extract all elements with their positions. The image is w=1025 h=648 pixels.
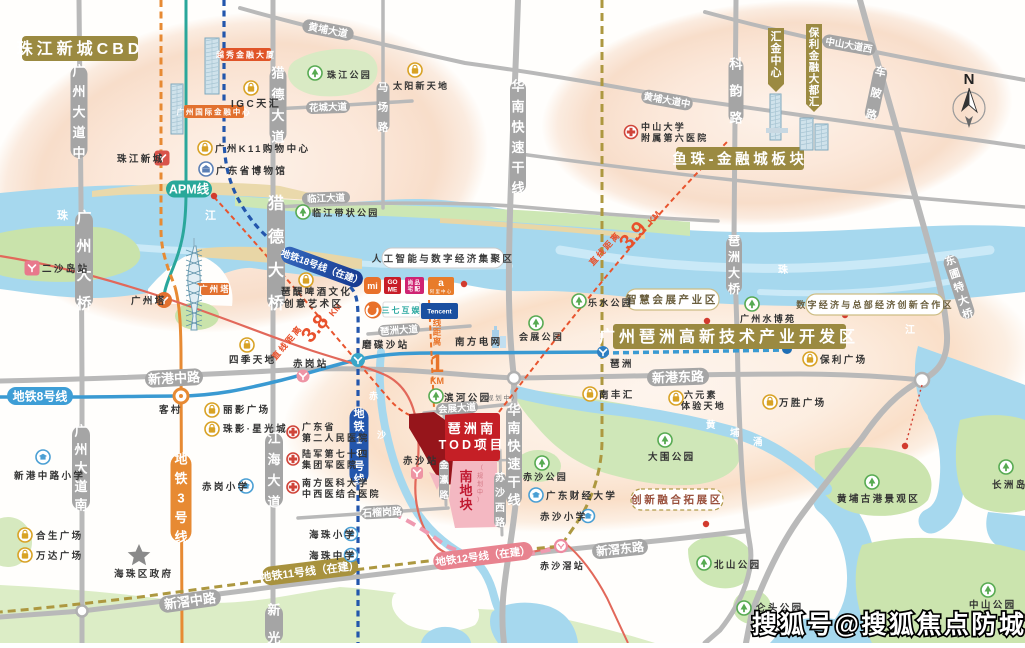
svg-text:融: 融 xyxy=(809,61,820,74)
svg-text:地: 地 xyxy=(354,406,365,420)
svg-text:南丰汇: 南丰汇 xyxy=(599,389,635,401)
svg-text:会展公园: 会展公园 xyxy=(519,331,564,342)
svg-text:ME: ME xyxy=(388,287,398,294)
svg-text:中山公园: 中山公园 xyxy=(969,599,1017,611)
svg-text:广: 广 xyxy=(76,208,91,226)
svg-text:广州水博苑: 广州水博苑 xyxy=(740,313,796,324)
svg-text:快: 快 xyxy=(507,439,521,454)
svg-text:鱼珠-金融城板块: 鱼珠-金融城板块 xyxy=(672,150,807,168)
svg-text:花城大道: 花城大道 xyxy=(309,101,348,114)
svg-text:二沙岛站: 二沙岛站 xyxy=(42,263,90,275)
svg-text:广州K11购物中心: 广州K11购物中心 xyxy=(215,143,310,155)
svg-text:（规划中）: （规划中） xyxy=(479,393,520,402)
svg-text:干: 干 xyxy=(507,475,520,490)
svg-text:大围公园: 大围公园 xyxy=(648,451,696,463)
svg-text:道: 道 xyxy=(271,130,284,145)
svg-text:广东省博物馆: 广东省博物馆 xyxy=(216,165,287,177)
svg-text:地铁8号线: 地铁8号线 xyxy=(13,388,68,403)
svg-text:离: 离 xyxy=(433,337,442,347)
svg-text:路: 路 xyxy=(439,489,449,500)
svg-text:猎: 猎 xyxy=(268,194,284,213)
svg-text:尚品: 尚品 xyxy=(408,279,422,287)
svg-text:琶醍啤酒文化: 琶醍啤酒文化 xyxy=(281,286,352,298)
svg-text:）: ） xyxy=(477,497,483,504)
svg-text:铁: 铁 xyxy=(354,419,365,433)
svg-text:划: 划 xyxy=(477,480,483,488)
svg-text:大: 大 xyxy=(267,473,280,488)
svg-text:桥: 桥 xyxy=(728,281,741,296)
svg-text:黄: 黄 xyxy=(706,419,718,431)
svg-text:Tencent: Tencent xyxy=(427,309,452,316)
svg-text:桥: 桥 xyxy=(76,294,92,312)
svg-text:线: 线 xyxy=(174,530,187,545)
svg-text:客村: 客村 xyxy=(158,404,183,416)
svg-text:广州琶洲高新技术产业开发区: 广州琶洲高新技术产业开发区 xyxy=(599,327,859,346)
svg-text:赤沙公园: 赤沙公园 xyxy=(523,471,568,482)
svg-text:新港中路小学: 新港中路小学 xyxy=(14,470,85,482)
svg-text:快: 快 xyxy=(511,119,525,134)
svg-text:珠江新城: 珠江新城 xyxy=(117,153,165,165)
svg-text:新港中路: 新港中路 xyxy=(148,369,202,387)
svg-text:地: 地 xyxy=(174,452,187,467)
svg-text:万胜广场: 万胜广场 xyxy=(778,397,827,409)
svg-text:金: 金 xyxy=(438,459,449,470)
svg-text:广州塔: 广州塔 xyxy=(199,284,231,294)
svg-text:赤岗站: 赤岗站 xyxy=(293,358,329,370)
svg-text:海: 海 xyxy=(267,452,280,467)
svg-text:南: 南 xyxy=(74,498,87,513)
svg-text:mi: mi xyxy=(367,281,378,291)
svg-text:汇: 汇 xyxy=(809,95,820,108)
svg-text:GO: GO xyxy=(387,279,397,286)
svg-text:琶: 琶 xyxy=(728,234,740,248)
svg-text:距: 距 xyxy=(433,327,442,337)
svg-text:广东省: 广东省 xyxy=(302,421,336,432)
svg-text:速: 速 xyxy=(511,140,524,155)
svg-text:陆军第七十四: 陆军第七十四 xyxy=(302,448,370,459)
svg-text:赤沙小学: 赤沙小学 xyxy=(540,511,588,523)
svg-text:场: 场 xyxy=(378,101,389,114)
svg-text:利: 利 xyxy=(809,38,820,51)
svg-text:德: 德 xyxy=(268,227,284,246)
svg-text:大: 大 xyxy=(809,72,820,85)
svg-text:苏: 苏 xyxy=(495,471,505,484)
svg-text:金: 金 xyxy=(770,41,783,55)
svg-text:大: 大 xyxy=(271,108,284,123)
svg-text:中: 中 xyxy=(477,488,483,496)
svg-text:号: 号 xyxy=(174,510,187,525)
svg-text:光: 光 xyxy=(266,631,280,643)
svg-text:新港东路: 新港东路 xyxy=(652,369,705,386)
svg-text:广: 广 xyxy=(74,424,87,439)
svg-text:海珠区政府: 海珠区政府 xyxy=(114,568,173,580)
svg-text:N: N xyxy=(964,71,975,88)
svg-text:北山公园: 北山公园 xyxy=(714,559,762,571)
svg-text:沙: 沙 xyxy=(377,430,388,440)
svg-text:南: 南 xyxy=(507,421,520,436)
svg-text:南: 南 xyxy=(511,99,524,114)
svg-text:a: a xyxy=(438,278,444,289)
svg-text:赤沙滘站: 赤沙滘站 xyxy=(540,560,585,571)
svg-text:珠江新城CBD: 珠江新城CBD xyxy=(17,39,144,58)
svg-text:越秀金融大厦: 越秀金融大厦 xyxy=(215,50,276,60)
svg-text:赤岗小学: 赤岗小学 xyxy=(202,481,250,493)
svg-text:附属第六医院: 附属第六医院 xyxy=(641,132,709,143)
svg-text:赤沙站: 赤沙站 xyxy=(403,455,439,467)
svg-text:六元素: 六元素 xyxy=(684,389,718,400)
svg-text:创新融合拓展区: 创新融合拓展区 xyxy=(630,493,723,506)
svg-text:琶洲南: 琶洲南 xyxy=(448,421,497,436)
svg-text:搜狐号@搜狐焦点防城港站: 搜狐号@搜狐焦点防城港站 xyxy=(752,610,1025,639)
svg-text:长洲岛: 长洲岛 xyxy=(992,479,1025,491)
svg-text:韵: 韵 xyxy=(729,84,742,99)
svg-text:第二人民医院: 第二人民医院 xyxy=(302,432,370,443)
svg-text:块: 块 xyxy=(459,497,473,512)
svg-text:TOD项目: TOD项目 xyxy=(439,438,506,452)
svg-text:大: 大 xyxy=(728,265,740,280)
svg-text:都: 都 xyxy=(808,84,820,97)
svg-text:线: 线 xyxy=(511,181,524,196)
svg-text:南方电网: 南方电网 xyxy=(455,336,503,348)
svg-text:保利广场: 保利广场 xyxy=(819,354,868,366)
svg-text:保: 保 xyxy=(808,26,820,39)
svg-text:地: 地 xyxy=(459,483,472,498)
svg-text:海珠中学: 海珠中学 xyxy=(309,550,357,562)
svg-text:规: 规 xyxy=(477,472,483,480)
svg-text:道: 道 xyxy=(72,125,85,140)
svg-text:阿里中心: 阿里中心 xyxy=(430,288,452,295)
svg-text:埔: 埔 xyxy=(730,427,742,439)
svg-text:KM: KM xyxy=(430,376,444,386)
svg-text:APM线: APM线 xyxy=(169,182,210,197)
svg-text:海珠小学: 海珠小学 xyxy=(309,529,357,541)
svg-text:赤: 赤 xyxy=(369,390,380,401)
svg-text:集团军医院: 集团军医院 xyxy=(301,459,358,470)
svg-text:州: 州 xyxy=(73,442,87,457)
svg-text:中山大学: 中山大学 xyxy=(641,121,686,132)
svg-text:珠: 珠 xyxy=(778,263,791,276)
svg-text:（: （ xyxy=(477,465,483,472)
svg-text:洲: 洲 xyxy=(728,250,740,264)
svg-text:太阳新天地: 太阳新天地 xyxy=(392,80,449,91)
svg-text:广东财经大学: 广东财经大学 xyxy=(546,490,617,502)
svg-text:中西医结合医院: 中西医结合医院 xyxy=(302,488,381,499)
svg-text:创意艺术区: 创意艺术区 xyxy=(283,298,343,310)
svg-text:珠: 珠 xyxy=(57,208,71,222)
svg-text:合生广场: 合生广场 xyxy=(36,530,84,542)
svg-text:路: 路 xyxy=(378,121,389,134)
svg-text:南: 南 xyxy=(459,469,472,484)
svg-text:3: 3 xyxy=(177,491,184,506)
svg-text:线: 线 xyxy=(507,493,520,508)
svg-text:金: 金 xyxy=(808,49,820,62)
svg-text:华: 华 xyxy=(507,403,520,418)
svg-text:州: 州 xyxy=(71,84,85,99)
svg-text:铁: 铁 xyxy=(173,471,187,486)
svg-text:大: 大 xyxy=(268,260,284,279)
svg-text:瀛: 瀛 xyxy=(439,474,448,485)
svg-text:体验天地: 体验天地 xyxy=(681,400,726,411)
svg-text:猎: 猎 xyxy=(271,66,284,81)
svg-text:干: 干 xyxy=(511,160,524,175)
svg-text:汇: 汇 xyxy=(771,30,782,43)
svg-text:涌: 涌 xyxy=(753,436,765,448)
svg-text:IGC天汇: IGC天汇 xyxy=(231,97,281,110)
svg-text:乐水公园: 乐水公园 xyxy=(588,297,633,308)
svg-text:科: 科 xyxy=(729,57,742,72)
svg-text:人工智能与数字经济集聚区: 人工智能与数字经济集聚区 xyxy=(372,253,515,265)
svg-text:磨碟沙站: 磨碟沙站 xyxy=(361,339,410,351)
svg-text:1: 1 xyxy=(430,350,444,378)
svg-text:马: 马 xyxy=(378,82,389,94)
svg-text:宅配: 宅配 xyxy=(408,285,422,293)
svg-text:新: 新 xyxy=(267,603,280,618)
svg-text:广: 广 xyxy=(72,64,85,79)
svg-text:临江大道: 临江大道 xyxy=(307,192,346,205)
svg-text:江: 江 xyxy=(205,208,219,222)
svg-text:中: 中 xyxy=(72,146,85,161)
svg-text:智慧会展产业区: 智慧会展产业区 xyxy=(625,293,718,306)
svg-text:中: 中 xyxy=(771,53,782,67)
svg-text:南方医科大学: 南方医科大学 xyxy=(302,477,370,488)
svg-text:黄埔古港景观区: 黄埔古港景观区 xyxy=(837,493,920,505)
svg-text:州: 州 xyxy=(75,238,91,255)
svg-text:华: 华 xyxy=(511,79,524,94)
svg-text:西: 西 xyxy=(495,502,505,514)
svg-text:速: 速 xyxy=(507,457,520,472)
svg-text:三七互娱: 三七互娱 xyxy=(382,305,422,315)
svg-text:四季天地: 四季天地 xyxy=(229,354,277,366)
svg-text:珠江公园: 珠江公园 xyxy=(327,69,372,80)
svg-text:道: 道 xyxy=(267,495,280,510)
svg-text:江: 江 xyxy=(905,323,918,336)
svg-text:路: 路 xyxy=(729,111,743,126)
svg-text:丽影广场: 丽影广场 xyxy=(223,404,271,416)
svg-text:琶洲: 琶洲 xyxy=(610,359,634,370)
svg-text:心: 心 xyxy=(771,66,782,79)
svg-text:数字经济与总部经济创新合作区: 数字经济与总部经济创新合作区 xyxy=(796,299,954,310)
svg-text:广州塔: 广州塔 xyxy=(131,295,167,307)
svg-text:大: 大 xyxy=(72,105,85,120)
svg-text:万达广场: 万达广场 xyxy=(35,550,84,562)
svg-text:临江带状公园: 临江带状公园 xyxy=(312,207,380,218)
svg-text:珠影·星光城: 珠影·星光城 xyxy=(223,423,288,435)
svg-text:沙: 沙 xyxy=(495,487,505,499)
svg-text:路: 路 xyxy=(495,516,506,529)
